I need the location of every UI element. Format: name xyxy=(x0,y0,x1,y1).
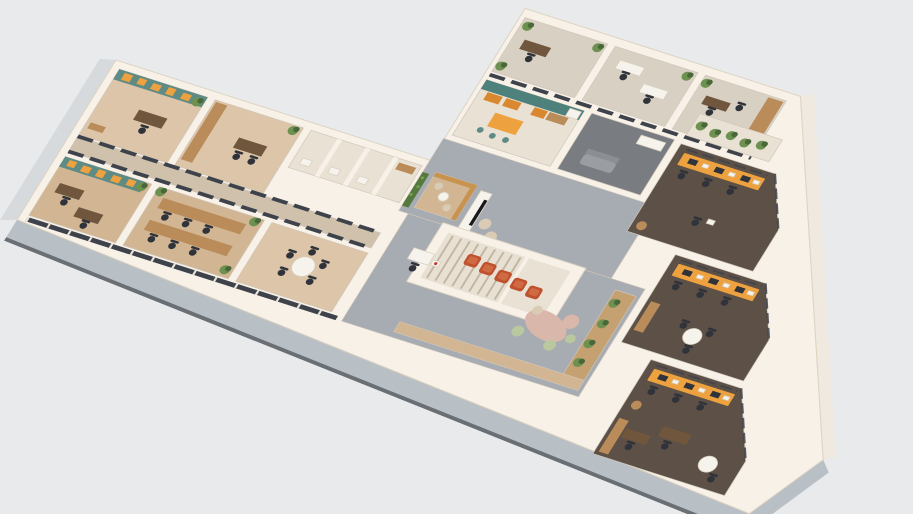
floor-plan-render xyxy=(0,0,913,514)
render-stage xyxy=(0,0,913,514)
